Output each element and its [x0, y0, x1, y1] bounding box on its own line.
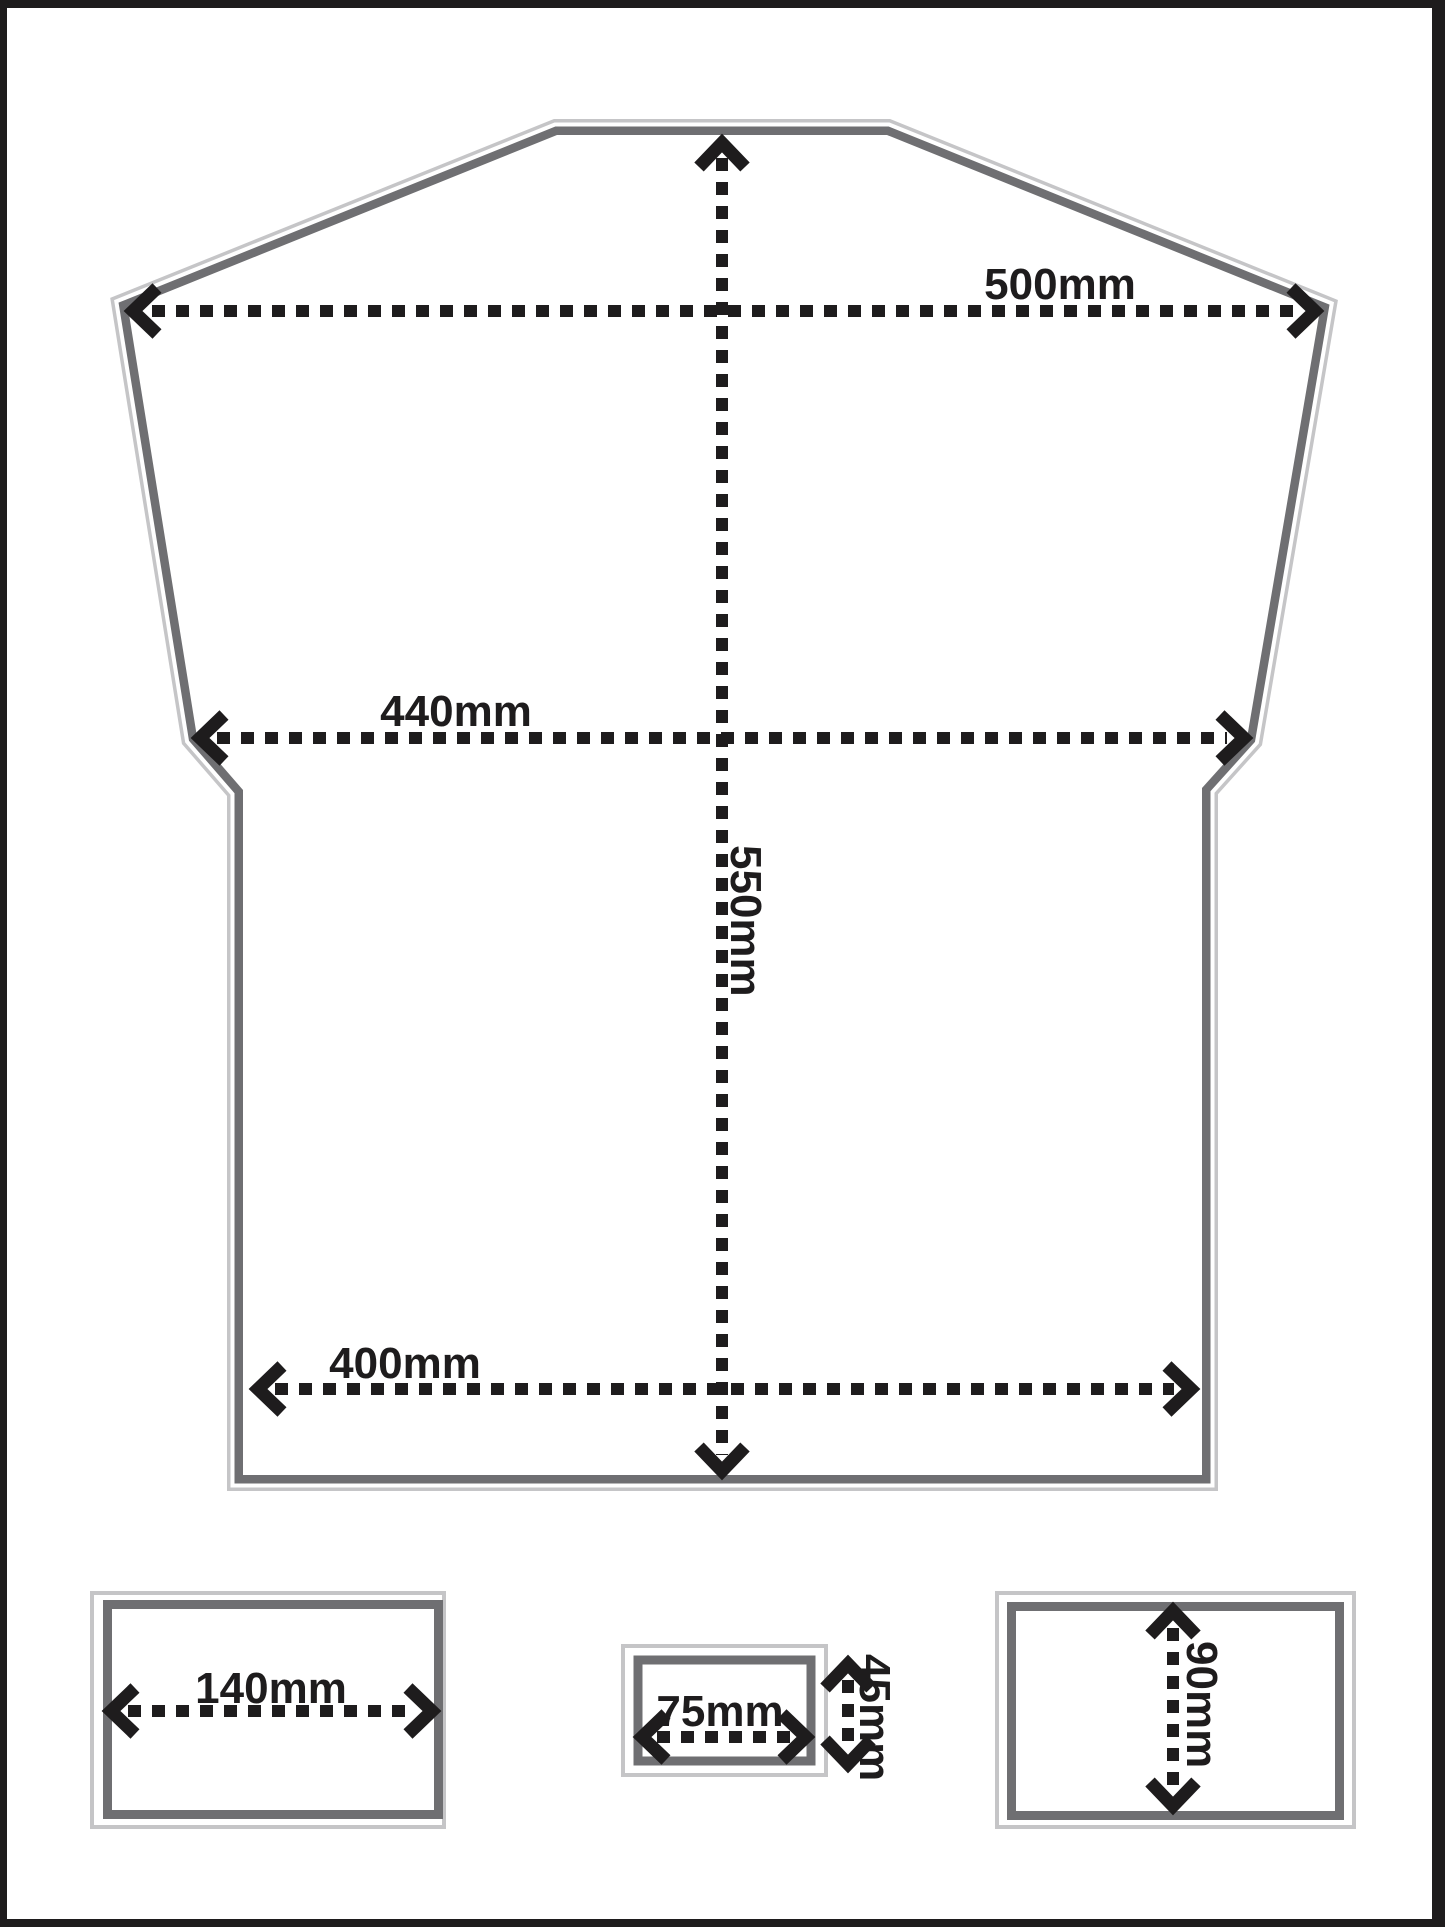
- label-length: 550mm: [721, 845, 770, 997]
- label-center-box-height: 45mm: [850, 1654, 899, 1781]
- page: 500mm 440mm 550mm 400mm 140mm 75mm 45mm …: [0, 0, 1445, 1927]
- frame-left: [0, 0, 7, 1927]
- garment-dimension-diagram: 500mm 440mm 550mm 400mm 140mm 75mm 45mm …: [0, 0, 1445, 1927]
- label-chest-width: 440mm: [380, 687, 532, 736]
- frame-top: [0, 0, 1445, 8]
- frame-right: [1432, 0, 1445, 1927]
- label-right-box-height: 90mm: [1177, 1641, 1226, 1768]
- frame-bottom: [0, 1919, 1445, 1927]
- label-center-box-width: 75mm: [656, 1687, 783, 1736]
- label-top-width: 500mm: [984, 260, 1136, 309]
- label-left-box-width: 140mm: [195, 1664, 347, 1713]
- label-hem-width: 400mm: [329, 1339, 481, 1388]
